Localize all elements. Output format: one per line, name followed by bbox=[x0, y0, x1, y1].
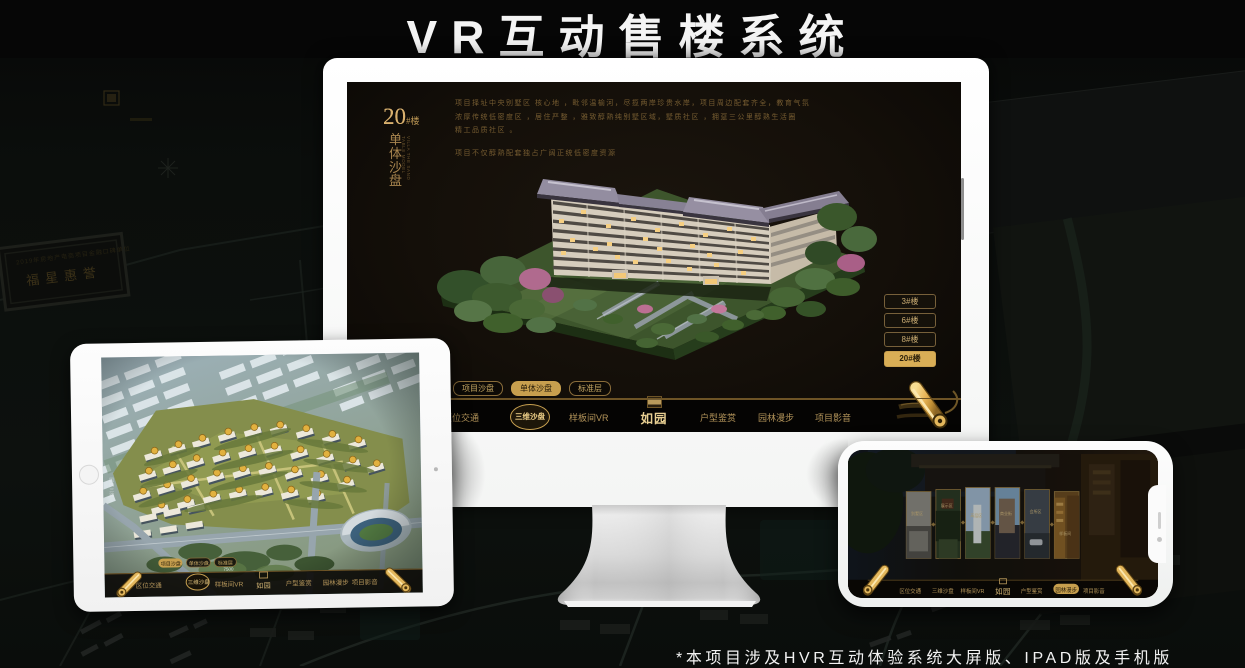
svg-text:如园: 如园 bbox=[995, 586, 1011, 596]
svg-text:户型鉴赏: 户型鉴赏 bbox=[1021, 587, 1043, 595]
svg-text:三维沙盘: 三维沙盘 bbox=[932, 587, 954, 595]
svg-text:样板间VR: 样板间VR bbox=[961, 587, 985, 595]
svg-text:户型鉴赏: 户型鉴赏 bbox=[286, 578, 313, 587]
svg-text:区位交通: 区位交通 bbox=[136, 581, 163, 590]
svg-text:园林漫步: 园林漫步 bbox=[323, 578, 350, 587]
svg-text:7500: 7500 bbox=[223, 566, 234, 571]
svg-text:单体沙盘: 单体沙盘 bbox=[189, 560, 209, 567]
svg-text:样板间VR: 样板间VR bbox=[215, 579, 244, 588]
svg-text:项目影音: 项目影音 bbox=[352, 577, 379, 586]
svg-text:项目沙盘: 项目沙盘 bbox=[161, 560, 181, 567]
svg-text:区位交通: 区位交通 bbox=[899, 587, 921, 595]
svg-text:国庆三路: 国庆三路 bbox=[108, 477, 114, 498]
svg-text:如园: 如园 bbox=[256, 581, 271, 590]
svg-text:项目影音: 项目影音 bbox=[1083, 587, 1105, 595]
svg-text:园林漫步: 园林漫步 bbox=[1055, 586, 1077, 594]
